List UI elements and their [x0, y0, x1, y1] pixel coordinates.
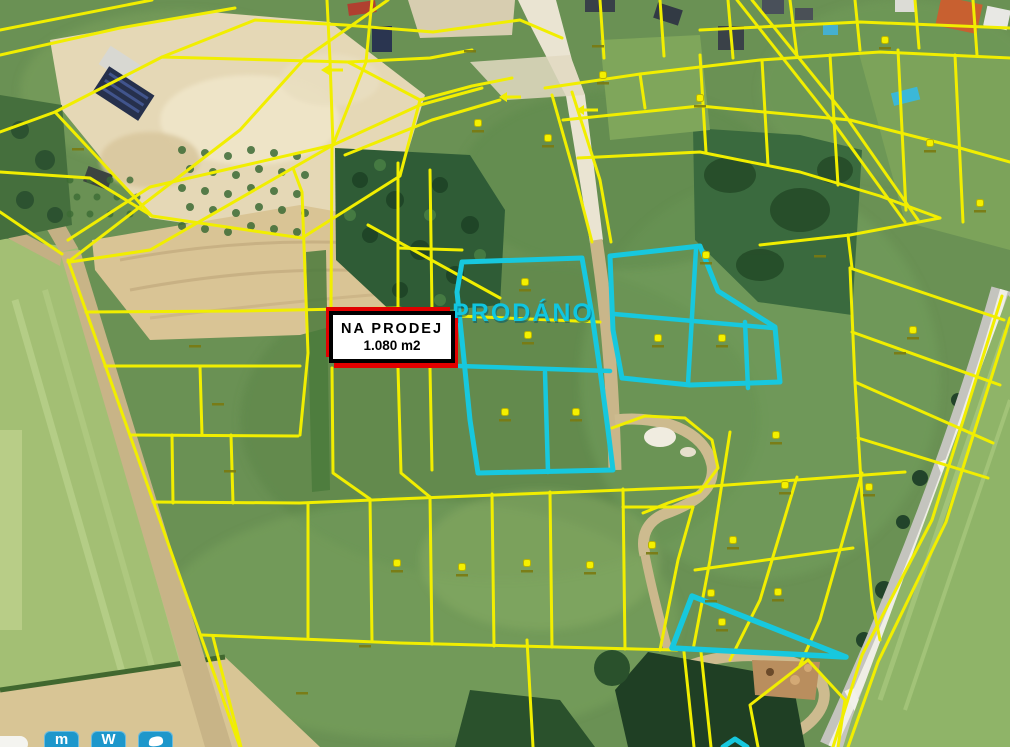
highlight-parcel-divider [745, 322, 748, 388]
parcel-marker-dot [866, 484, 873, 491]
cadastral-line [430, 368, 432, 470]
cadastral-line [430, 497, 432, 644]
parcel-marker-dot [977, 200, 984, 207]
parcel-number-label [879, 47, 891, 50]
for-sale-label: NA PRODEJ 1.080 m2 [329, 311, 455, 363]
hand-logo-icon[interactable] [138, 731, 173, 747]
mapy-logo-icon[interactable]: m [44, 731, 79, 747]
parcel-marker-dot [394, 560, 401, 567]
parcel-marker-dot [703, 252, 710, 259]
cadastral-line [492, 494, 494, 646]
parcel-number-label [519, 289, 531, 292]
parcel-number-label [863, 494, 875, 497]
parcel-number-label [894, 352, 906, 355]
parcel-marker-dot [655, 335, 662, 342]
parcel-number-label [521, 570, 533, 573]
corner-badge [0, 736, 28, 747]
parcel-number-label [584, 572, 596, 575]
parcel-number-label [770, 442, 782, 445]
cadastral-line [370, 499, 372, 641]
parcel-number-label [694, 105, 706, 108]
cadastral-line [231, 435, 233, 503]
cadastral-line [430, 170, 432, 310]
parcel-number-label [772, 599, 784, 602]
parcel-number-label [391, 570, 403, 573]
cadastral-line [200, 366, 202, 435]
parcel-number-label [705, 600, 717, 603]
parcel-number-label [296, 692, 308, 695]
swimming-pool [823, 25, 838, 35]
for-sale-text: NA PRODEJ [341, 321, 443, 338]
highlight-parcel-divider [545, 372, 548, 472]
parcel-number-label [974, 210, 986, 213]
parcel-number-label [592, 45, 604, 48]
parcel-marker-dot [522, 279, 529, 286]
cadastral-line [130, 435, 298, 436]
parcel-marker-dot [600, 72, 607, 79]
parcel-number-label [570, 419, 582, 422]
parcel-marker-dot [719, 619, 726, 626]
parcel-number-label [924, 150, 936, 153]
parcel-marker-dot [730, 537, 737, 544]
parcel-number-label [456, 574, 468, 577]
parcel-marker-dot [525, 332, 532, 339]
parcel-marker-dot [475, 120, 482, 127]
parcel-marker-dot [502, 409, 509, 416]
parcel-number-label [716, 345, 728, 348]
parcel-marker-dot [910, 327, 917, 334]
parcel-number-label [814, 255, 826, 258]
windy-logo-icon[interactable]: W [91, 731, 126, 747]
parcel-number-label [779, 492, 791, 495]
parcel-marker-dot [573, 409, 580, 416]
map-provider-watermark: m W [44, 731, 173, 747]
parcel-number-label [189, 345, 201, 348]
parcel-marker-dot [719, 335, 726, 342]
aerial-photo-canvas [0, 0, 1010, 747]
map-viewport: NA PRODEJ 1.080 m2 PRODÁNO m W [0, 0, 1010, 747]
cadastral-line [172, 435, 173, 503]
parcel-marker-dot [773, 432, 780, 439]
cadastral-line [331, 145, 332, 307]
for-sale-area: 1.080 m2 [363, 338, 420, 354]
parcel-number-label [472, 130, 484, 133]
parcel-number-label [727, 547, 739, 550]
parcel-number-label [597, 82, 609, 85]
parcel-number-label [700, 262, 712, 265]
parcel-marker-dot [927, 140, 934, 147]
sold-label: PRODÁNO [448, 299, 598, 328]
parcel-number-label [652, 345, 664, 348]
cadastral-line [623, 489, 625, 649]
parcel-number-label [907, 337, 919, 340]
parcel-marker-dot [545, 135, 552, 142]
parcel-number-label [72, 148, 84, 151]
parcel-number-label [522, 342, 534, 345]
parcel-number-label [359, 645, 371, 648]
parcel-number-label [646, 552, 658, 555]
parcel-marker-dot [775, 589, 782, 596]
parcel-marker-dot [697, 95, 704, 102]
parcel-number-label [224, 470, 236, 473]
parcel-number-label [212, 403, 224, 406]
parcel-marker-dot [524, 560, 531, 567]
parcel-marker-dot [782, 482, 789, 489]
parcel-marker-dot [882, 37, 889, 44]
parcel-marker-dot [587, 562, 594, 569]
parcel-number-label [542, 145, 554, 148]
parcel-number-label [716, 629, 728, 632]
parcel-marker-dot [649, 542, 656, 549]
parcel-number-label [499, 419, 511, 422]
parcel-marker-dot [459, 564, 466, 571]
parcel-marker-dot [708, 590, 715, 597]
parcel-number-label [464, 50, 476, 53]
cadastral-line [550, 492, 552, 647]
